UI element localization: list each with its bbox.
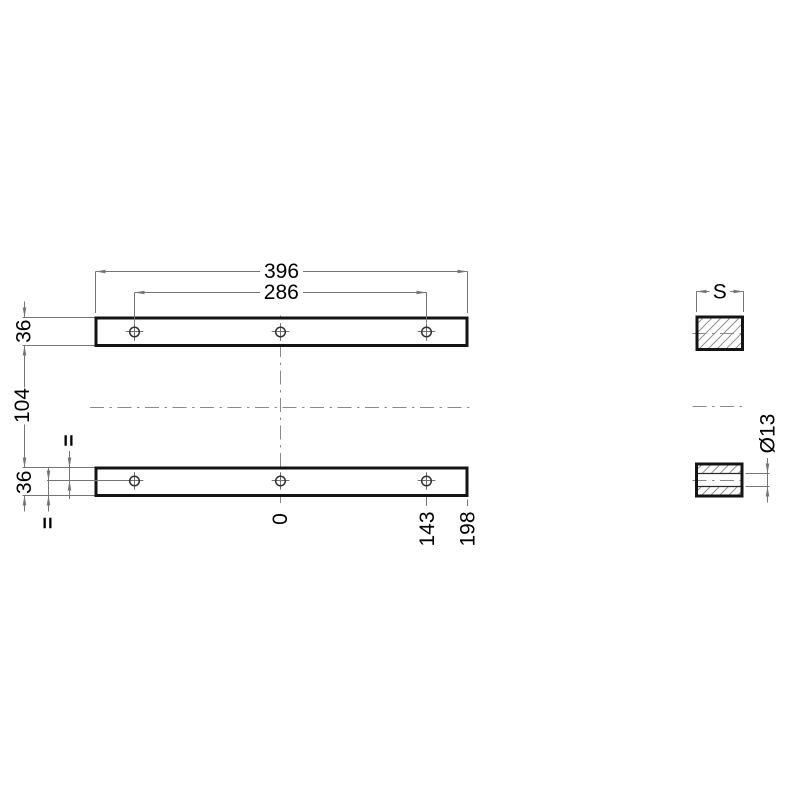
svg-text:=: = — [37, 517, 60, 529]
svg-text:104: 104 — [11, 388, 34, 423]
svg-text:0: 0 — [269, 513, 292, 525]
svg-text:36: 36 — [13, 471, 36, 494]
svg-text:Ø13: Ø13 — [757, 414, 780, 454]
svg-text:=: = — [58, 434, 81, 446]
svg-text:286: 286 — [264, 281, 299, 304]
svg-text:S: S — [713, 280, 727, 303]
svg-text:36: 36 — [13, 320, 36, 343]
svg-text:143: 143 — [416, 511, 439, 546]
svg-text:198: 198 — [457, 511, 480, 546]
svg-text:396: 396 — [264, 260, 299, 283]
